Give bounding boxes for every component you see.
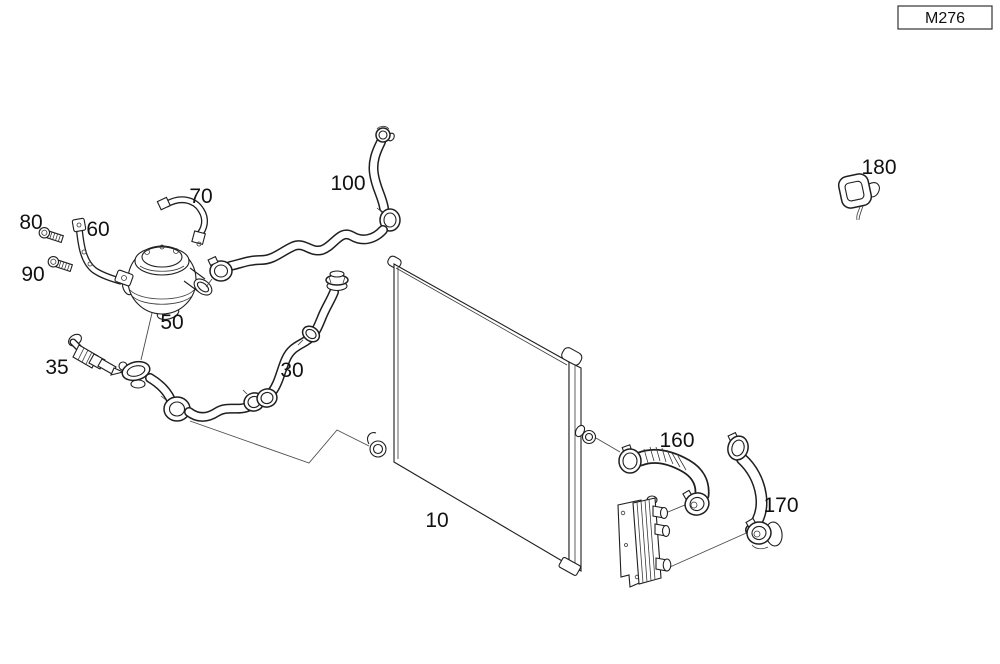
callout-60[interactable]: 60 bbox=[86, 218, 109, 241]
parts-diagram-page: 80 60 90 70 100 180 50 35 30 10 160 170 … bbox=[0, 0, 1000, 664]
callout-10[interactable]: 10 bbox=[425, 509, 448, 532]
engine-code-label: M276 bbox=[925, 10, 965, 27]
leader-hose30-to-radiator bbox=[190, 421, 369, 463]
callout-30[interactable]: 30 bbox=[280, 359, 303, 382]
sensor-drawing bbox=[66, 332, 123, 375]
radiator-core bbox=[394, 264, 569, 565]
oil-cooler-hose-drawing bbox=[725, 433, 783, 549]
leader-radiator-to-hose160 bbox=[596, 438, 620, 452]
screw-90-drawing bbox=[47, 255, 73, 272]
callout-100[interactable]: 100 bbox=[330, 172, 365, 195]
upper-hose-drawing bbox=[206, 126, 400, 287]
radiator-drawing bbox=[368, 255, 596, 576]
oil-cooler-port-top bbox=[661, 508, 668, 519]
leader-cooler-to-hose170 bbox=[670, 530, 753, 567]
callout-50[interactable]: 50 bbox=[160, 311, 183, 334]
engine-code-box: M276 bbox=[898, 6, 992, 29]
callout-180[interactable]: 180 bbox=[861, 156, 896, 179]
clip-drawing bbox=[837, 172, 879, 220]
callout-70[interactable]: 70 bbox=[189, 185, 212, 208]
small-hose-end-left bbox=[157, 197, 170, 209]
callout-170[interactable]: 170 bbox=[763, 494, 798, 517]
callout-35[interactable]: 35 bbox=[45, 356, 68, 379]
callout-160[interactable]: 160 bbox=[659, 429, 694, 452]
oil-cooler-port-bottom bbox=[663, 559, 671, 571]
oil-cooler-port-mid bbox=[663, 526, 670, 537]
callout-90[interactable]: 90 bbox=[21, 263, 44, 286]
callout-80[interactable]: 80 bbox=[19, 211, 42, 234]
leader-pump bbox=[141, 313, 152, 360]
bracket-top-plate bbox=[72, 218, 86, 232]
oil-cooler-drawing bbox=[618, 496, 671, 587]
parts-diagram-canvas: 80 60 90 70 100 180 50 35 30 10 160 170 … bbox=[0, 0, 1000, 664]
